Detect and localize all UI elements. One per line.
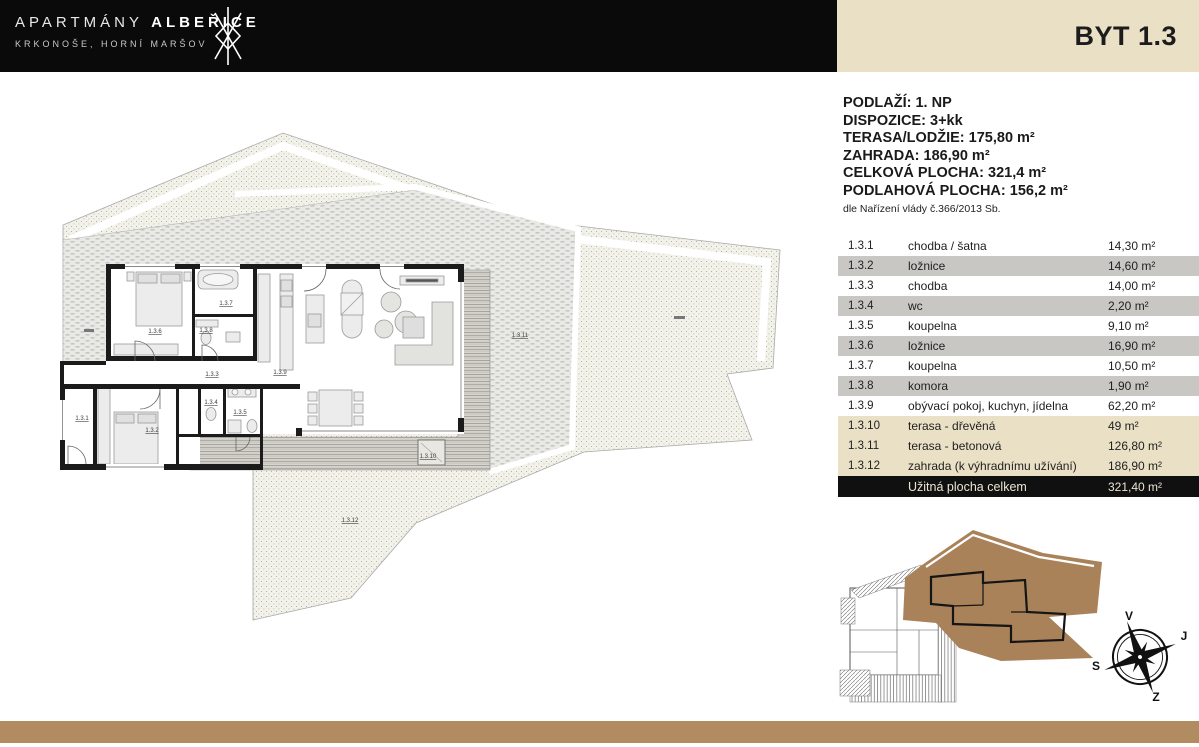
wall: [60, 361, 106, 365]
wall: [223, 384, 226, 437]
room-label-1-3-11: 1.3.11: [512, 333, 529, 339]
washer: [228, 420, 241, 433]
hatch-area: [841, 598, 855, 624]
total-label: Užitná plocha celkem: [908, 480, 1108, 494]
table-cell: 1.3.1: [838, 240, 908, 252]
unit-banner: BYT 1.3: [837, 0, 1199, 72]
detail-floor-area: PODLAHOVÁ PLOCHA: 156,2 m²: [843, 183, 1068, 201]
table-cell: 16,90 m²: [1108, 339, 1199, 353]
table-cell: zahrada (k výhradnímu užívání): [908, 459, 1108, 473]
chair: [354, 416, 363, 425]
dining-table: [319, 390, 352, 426]
table-cell: chodba: [908, 279, 1108, 293]
table-cell: ložnice: [908, 339, 1108, 353]
table-cell: 1.3.10: [838, 420, 908, 432]
unit-title: BYT 1.3: [1074, 21, 1199, 52]
table-row: 1.3.12zahrada (k výhradnímu užívání)186,…: [838, 456, 1199, 476]
fridge: [281, 296, 292, 307]
room-label-1-3-3: 1.3.3: [205, 372, 219, 378]
wall: [253, 264, 257, 361]
table-total-row: Užitná plocha celkem 321,40 m²: [838, 476, 1199, 497]
detail-floor: PODLAŽÍ: 1. NP: [843, 95, 1068, 113]
compass-north-label: S: [1092, 659, 1100, 673]
chair: [354, 392, 363, 401]
table-cell: ložnice: [908, 259, 1108, 273]
chair: [308, 404, 317, 413]
detail-layout: DISPOZICE: 3+kk: [843, 113, 1068, 131]
table-cell: 1.3.5: [838, 320, 908, 332]
table-row: 1.3.1chodba / šatna14,30 m²: [838, 236, 1199, 256]
compass-rose: V J S Z: [1091, 608, 1188, 705]
wall: [192, 264, 195, 359]
table-cell: chodba / šatna: [908, 239, 1108, 253]
compass-south-label: J: [1181, 629, 1188, 643]
elevation-marker: [84, 329, 94, 332]
total-area: 321,40 m²: [1108, 480, 1199, 494]
header-bar: APARTMÁNY ALBEŘICE KRKONOŠE, HORNÍ MARŠO…: [0, 0, 837, 72]
room-label-1-3-8: 1.3.8: [199, 328, 213, 334]
room-label-1-3-1: 1.3.1: [75, 416, 89, 422]
brand-rune-icon: [212, 6, 244, 66]
room-label-1-3-6: 1.3.6: [148, 329, 162, 335]
room-table: 1.3.1chodba / šatna14,30 m²1.3.2ložnice1…: [838, 236, 1199, 497]
table-row: 1.3.7koupelna10,50 m²: [838, 356, 1199, 376]
table-row: 1.3.2ložnice14,60 m²: [838, 256, 1199, 276]
table-cell: 1.3.3: [838, 280, 908, 292]
elevation-marker: [674, 316, 685, 319]
wall: [93, 384, 97, 470]
room-label-1-3-5: 1.3.5: [233, 410, 247, 416]
table-cell: 186,90 m²: [1108, 459, 1199, 473]
table-cell: 1.3.8: [838, 380, 908, 392]
wall: [176, 384, 179, 470]
wall: [458, 264, 464, 282]
table-cell: komora: [908, 379, 1108, 393]
floor-plan: 1.3.1 1.3.2 1.3.3 1.3.4 1.3.5 1.3.6 1.3.…: [40, 90, 840, 745]
table-row: 1.3.11terasa - betonová126,80 m²: [838, 436, 1199, 456]
table-row: 1.3.6ložnice16,90 m²: [838, 336, 1199, 356]
shelf: [196, 320, 218, 327]
detail-terrace: TERASA/LODŽIE: 175,80 m²: [843, 130, 1068, 148]
table-cell: 1.3.11: [838, 440, 908, 452]
footer-bar: [0, 721, 1199, 743]
compass-east-label: V: [1125, 609, 1133, 623]
room-table-body: 1.3.1chodba / šatna14,30 m²1.3.2ložnice1…: [838, 236, 1199, 476]
wall: [60, 361, 64, 389]
bathtub-basin: [203, 274, 233, 286]
wall: [192, 314, 256, 317]
brand-subtitle: KRKONOŠE, HORNÍ MARŠOV: [15, 39, 200, 49]
pillow: [138, 274, 157, 283]
page: APARTMÁNY ALBEŘICE KRKONOŠE, HORNÍ MARŠO…: [0, 0, 1199, 747]
coffee-table: [403, 317, 424, 338]
table-cell: 126,80 m²: [1108, 439, 1199, 453]
hatch-area: [840, 670, 870, 696]
table-cell: 2,20 m²: [1108, 299, 1199, 313]
wall: [176, 434, 263, 437]
site-overview-svg: V J S Z: [835, 520, 1199, 720]
wardrobe-column: [98, 388, 110, 464]
site-overview: V J S Z: [835, 520, 1199, 725]
table-cell: terasa - dřevěná: [908, 419, 1108, 433]
apartment-details: PODLAŽÍ: 1. NP DISPOZICE: 3+kk TERASA/LO…: [843, 95, 1068, 215]
kitchen-counter: [258, 274, 270, 362]
wall: [260, 437, 263, 470]
pillow: [116, 414, 134, 423]
table-cell: 14,00 m²: [1108, 279, 1199, 293]
table-cell: 62,20 m²: [1108, 399, 1199, 413]
table-cell: obývací pokoj, kuchyn, jídelna: [908, 399, 1108, 413]
table-row: 1.3.4wc2,20 m²: [838, 296, 1199, 316]
nightstand: [184, 272, 191, 281]
wall: [260, 384, 263, 440]
table-row: 1.3.5koupelna9,10 m²: [838, 316, 1199, 336]
table-cell: 1,90 m²: [1108, 379, 1199, 393]
room-label-1-3-9: 1.3.9: [273, 370, 287, 376]
toilet: [247, 420, 257, 433]
floor-plan-svg: 1.3.1 1.3.2 1.3.3 1.3.4 1.3.5 1.3.6 1.3.…: [40, 90, 840, 740]
basin: [245, 389, 251, 395]
table-cell: 1.3.2: [838, 260, 908, 272]
basin: [232, 389, 238, 395]
table-cell: 1.3.9: [838, 400, 908, 412]
compass-west-label: Z: [1152, 690, 1159, 704]
pillow: [138, 414, 156, 423]
room-label-1-3-10: 1.3.10: [420, 454, 437, 460]
chair: [354, 404, 363, 413]
table-cell: 1.3.7: [838, 360, 908, 372]
armchair: [381, 292, 401, 312]
table-cell: 49 m²: [1108, 419, 1199, 433]
room-label-1-3-7: 1.3.7: [219, 301, 233, 307]
wall: [106, 264, 111, 361]
wall: [106, 356, 257, 361]
table-cell: 1.3.6: [838, 340, 908, 352]
room-label-1-3-12: 1.3.12: [342, 518, 359, 524]
table-cell: koupelna: [908, 359, 1108, 373]
brand-title-light: APARTMÁNY: [15, 14, 143, 31]
table-cell: 14,30 m²: [1108, 239, 1199, 253]
nightstand: [127, 272, 134, 281]
detail-regulation-note: dle Nařízení vlády č.366/2013 Sb.: [843, 203, 1068, 215]
table-cell: 9,10 m²: [1108, 319, 1199, 333]
table-cell: koupelna: [908, 319, 1108, 333]
room-label-1-3-2: 1.3.2: [145, 428, 159, 434]
room-label-1-3-4: 1.3.4: [204, 400, 218, 406]
armchair: [375, 320, 393, 338]
detail-total-area: CELKOVÁ PLOCHA: 321,4 m²: [843, 165, 1068, 183]
wardrobe: [114, 344, 178, 355]
chair: [308, 392, 317, 401]
table-cell: terasa - betonová: [908, 439, 1108, 453]
pillow: [161, 274, 180, 283]
tv: [406, 279, 438, 282]
wall: [198, 384, 201, 437]
table-row: 1.3.8komora1,90 m²: [838, 376, 1199, 396]
chair: [308, 416, 317, 425]
wall: [296, 428, 302, 436]
table-cell: 14,60 m²: [1108, 259, 1199, 273]
washbasin: [226, 332, 240, 342]
wall: [458, 418, 464, 432]
table-row: 1.3.9obývací pokoj, kuchyn, jídelna62,20…: [838, 396, 1199, 416]
oven: [281, 280, 292, 291]
detail-garden: ZAHRADA: 186,90 m²: [843, 148, 1068, 166]
table-row: 1.3.3chodba14,00 m²: [838, 276, 1199, 296]
table-cell: 1.3.12: [838, 460, 908, 472]
table-row: 1.3.10terasa - dřevěná49 m²: [838, 416, 1199, 436]
island-sink: [308, 314, 321, 327]
table-cell: 1.3.4: [838, 300, 908, 312]
toilet: [206, 408, 216, 421]
table-cell: wc: [908, 299, 1108, 313]
table-cell: 10,50 m²: [1108, 359, 1199, 373]
